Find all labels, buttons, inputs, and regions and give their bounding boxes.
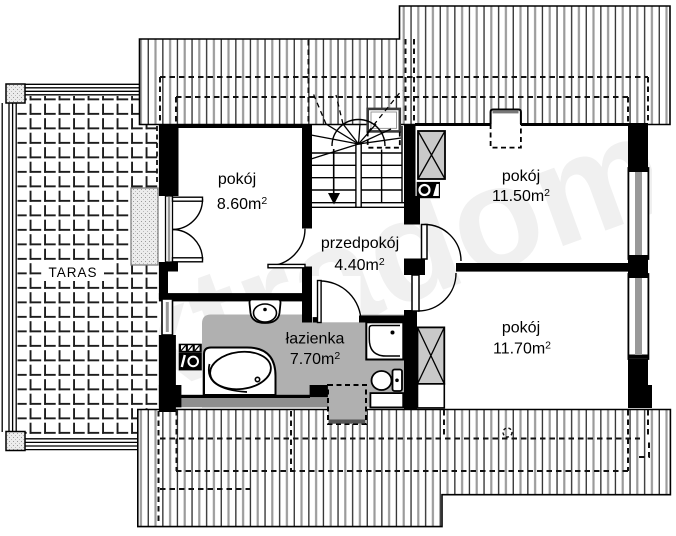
svg-text:7.70m2: 7.70m2 xyxy=(290,350,340,368)
svg-text:8.60m2: 8.60m2 xyxy=(217,195,267,213)
svg-text:przedpokój: przedpokój xyxy=(321,235,399,252)
svg-text:łazienka: łazienka xyxy=(286,331,345,348)
svg-text:11.70m2: 11.70m2 xyxy=(493,340,551,358)
svg-text:pokój: pokój xyxy=(502,168,540,185)
svg-text:pokój: pokój xyxy=(218,171,256,188)
svg-text:pokój: pokój xyxy=(502,320,540,337)
svg-text:4.40m2: 4.40m2 xyxy=(334,256,384,274)
svg-text:11.50m2: 11.50m2 xyxy=(492,187,550,205)
svg-text:TARAS: TARAS xyxy=(48,265,97,280)
